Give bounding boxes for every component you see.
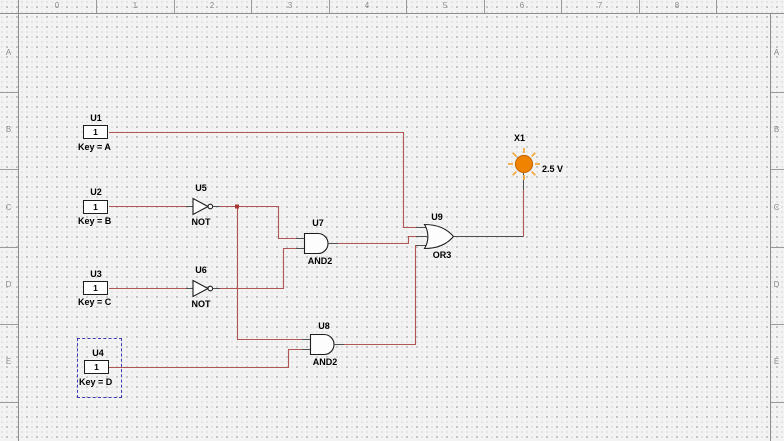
component-ref-x1: X1: [514, 133, 525, 143]
schematic-canvas[interactable]: 0 1 2 3 4 5 6 7 8 A B C D E A B C D E: [0, 0, 784, 441]
switch-u1-value: 1: [93, 127, 98, 137]
not-gate-u5-symbol[interactable]: [186, 199, 220, 215]
wire-junction-dot: [235, 205, 239, 209]
switch-u2[interactable]: 1: [83, 200, 108, 214]
gate-type-u5: NOT: [189, 217, 213, 227]
component-ref-u4: U4: [86, 348, 110, 358]
switch-u4-value: 1: [94, 362, 99, 372]
switch-u3[interactable]: 1: [83, 281, 108, 295]
component-ref-u8: U8: [312, 321, 336, 331]
switch-u4[interactable]: 1: [84, 360, 109, 374]
wire-net-a[interactable]: [109, 133, 417, 228]
component-ref-u6: U6: [189, 265, 213, 275]
component-ref-u2: U2: [84, 187, 108, 197]
not-gate-u6-symbol[interactable]: [186, 281, 220, 297]
gate-type-u6: NOT: [189, 299, 213, 309]
wire-net-cnot-to-and-u7[interactable]: [220, 249, 297, 289]
and-gate-u7-symbol[interactable]: [296, 234, 338, 254]
switch-u4-key-label: Key = D: [79, 377, 112, 387]
or-gate-u9-symbol[interactable]: [416, 225, 460, 249]
gate-type-u7: AND2: [302, 256, 338, 266]
switch-u3-value: 1: [93, 283, 98, 293]
and-gate-u8-symbol[interactable]: [302, 335, 344, 355]
switch-u2-key-label: Key = B: [78, 216, 111, 226]
probe-value: 2.5 V: [542, 164, 563, 174]
switch-u3-key-label: Key = C: [78, 297, 111, 307]
wire-net-bnot-to-and-u7[interactable]: [220, 207, 297, 239]
component-ref-u1: U1: [84, 113, 108, 123]
switch-u1-key-label: Key = A: [78, 142, 111, 152]
gate-type-u9: OR3: [424, 250, 460, 260]
component-ref-u3: U3: [84, 269, 108, 279]
component-ref-u5: U5: [189, 183, 213, 193]
component-ref-u7: U7: [306, 218, 330, 228]
wire-net-d-to-and-u8[interactable]: [109, 350, 303, 368]
wire-u7-out-to-or[interactable]: [338, 237, 417, 244]
wire-u8-out-to-or[interactable]: [344, 246, 417, 345]
voltage-probe-symbol[interactable]: [508, 148, 540, 190]
switch-u2-value: 1: [93, 202, 98, 212]
wire-net-bnot-to-and-u8[interactable]: [238, 207, 304, 340]
switch-u1[interactable]: 1: [83, 125, 108, 139]
probe-lamp-icon[interactable]: [516, 156, 533, 173]
gate-type-u8: AND2: [307, 357, 343, 367]
component-ref-u9: U9: [425, 212, 449, 222]
